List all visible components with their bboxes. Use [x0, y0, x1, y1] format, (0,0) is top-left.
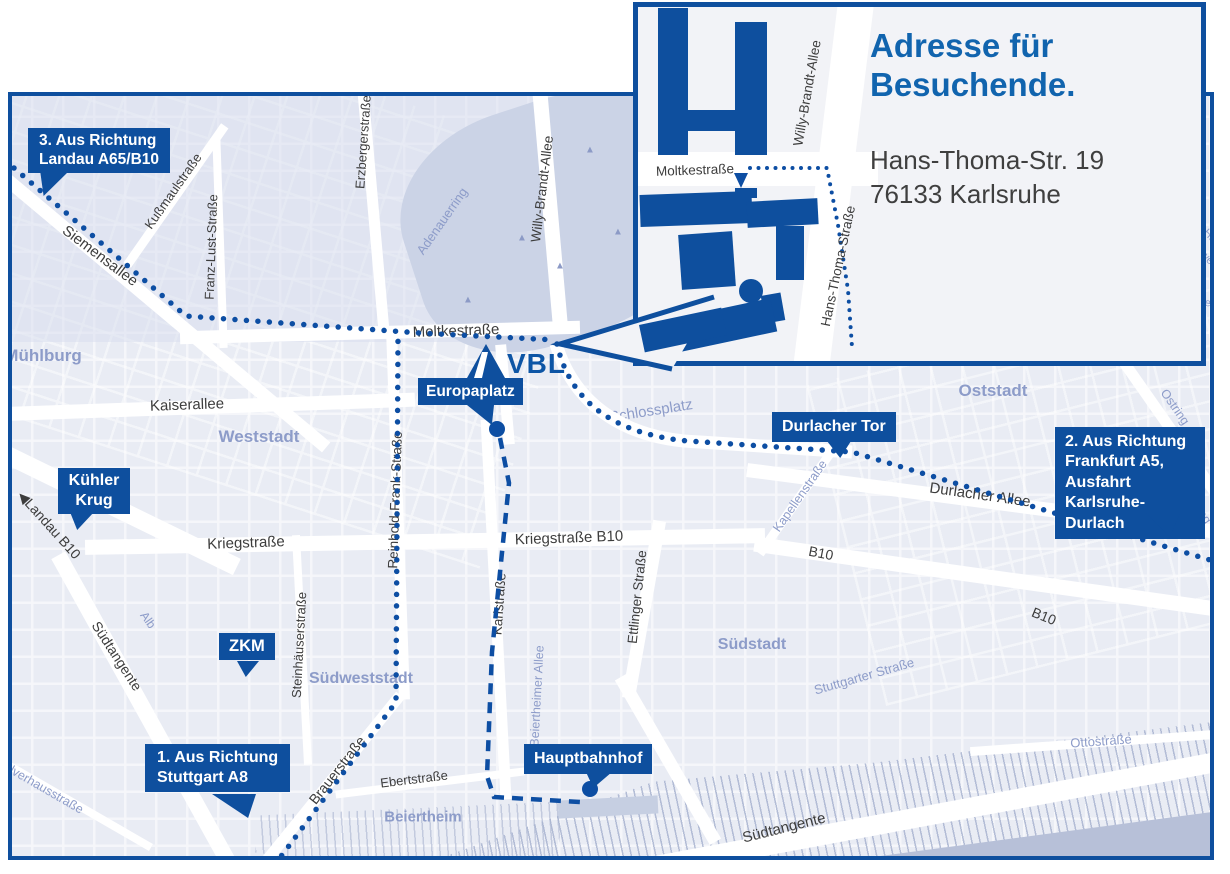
callout-frankfurt: 2. Aus Richtung Frankfurt A5, Ausfahrt K…	[1055, 427, 1205, 539]
callout-durlacher-tor: Durlacher Tor	[772, 412, 896, 442]
route-dotted-from-landau	[14, 168, 556, 340]
callout-hauptbahnhof: Hauptbahnhof	[524, 744, 652, 774]
inset-route-arrow-icon	[734, 173, 748, 188]
vbl-triangle-icon	[467, 344, 505, 378]
inset-title: Adresse für Besuchende.	[870, 27, 1075, 105]
callout-europaplatz: Europaplatz	[418, 378, 523, 405]
vbl-logo: VBL	[467, 344, 566, 378]
callout-landau: 3. Aus Richtung Landau A65/B10	[28, 128, 170, 173]
callout-stuttgart: 1. Aus Richtung Stuttgart A8	[145, 744, 290, 792]
vbl-logo-text: VBL	[507, 350, 566, 378]
callout-kuehler-krug: Kühler Krug	[58, 468, 130, 514]
inset-address: Hans-Thoma-Str. 19 76133 Karlsruhe	[870, 143, 1104, 212]
vbl-directions-map: ▲ ▲ ▲ ▲ ▲	[0, 0, 1230, 874]
callout-zkm: ZKM	[219, 633, 275, 660]
inset-street-label-moltkestrasse: Moltkestraße	[656, 161, 735, 179]
